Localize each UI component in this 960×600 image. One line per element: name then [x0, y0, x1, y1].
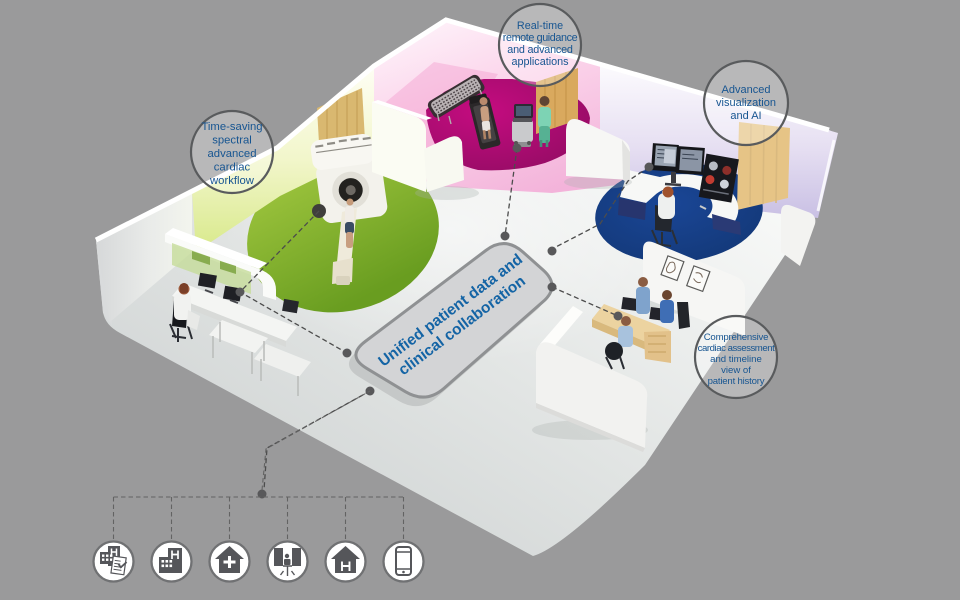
svg-text:remote guidance: remote guidance	[503, 32, 578, 44]
svg-text:workflow: workflow	[209, 175, 255, 187]
svg-text:cardiac: cardiac	[214, 162, 251, 174]
svg-text:cardiac assessment: cardiac assessment	[698, 343, 775, 354]
svg-text:patient history: patient history	[708, 376, 765, 387]
svg-text:applications: applications	[511, 56, 569, 68]
svg-text:Time-saving: Time-saving	[201, 121, 262, 133]
svg-text:and advanced: and advanced	[507, 44, 573, 56]
svg-text:visualization: visualization	[716, 97, 776, 109]
svg-text:Advanced: Advanced	[722, 84, 771, 96]
svg-text:and AI: and AI	[730, 110, 761, 122]
svg-text:view of: view of	[721, 365, 751, 376]
svg-text:Real-time: Real-time	[517, 20, 563, 32]
svg-text:advanced: advanced	[208, 148, 257, 160]
svg-text:and timeline: and timeline	[710, 354, 762, 365]
svg-text:spectral: spectral	[212, 135, 252, 147]
svg-text:Comprehensive: Comprehensive	[704, 332, 769, 343]
